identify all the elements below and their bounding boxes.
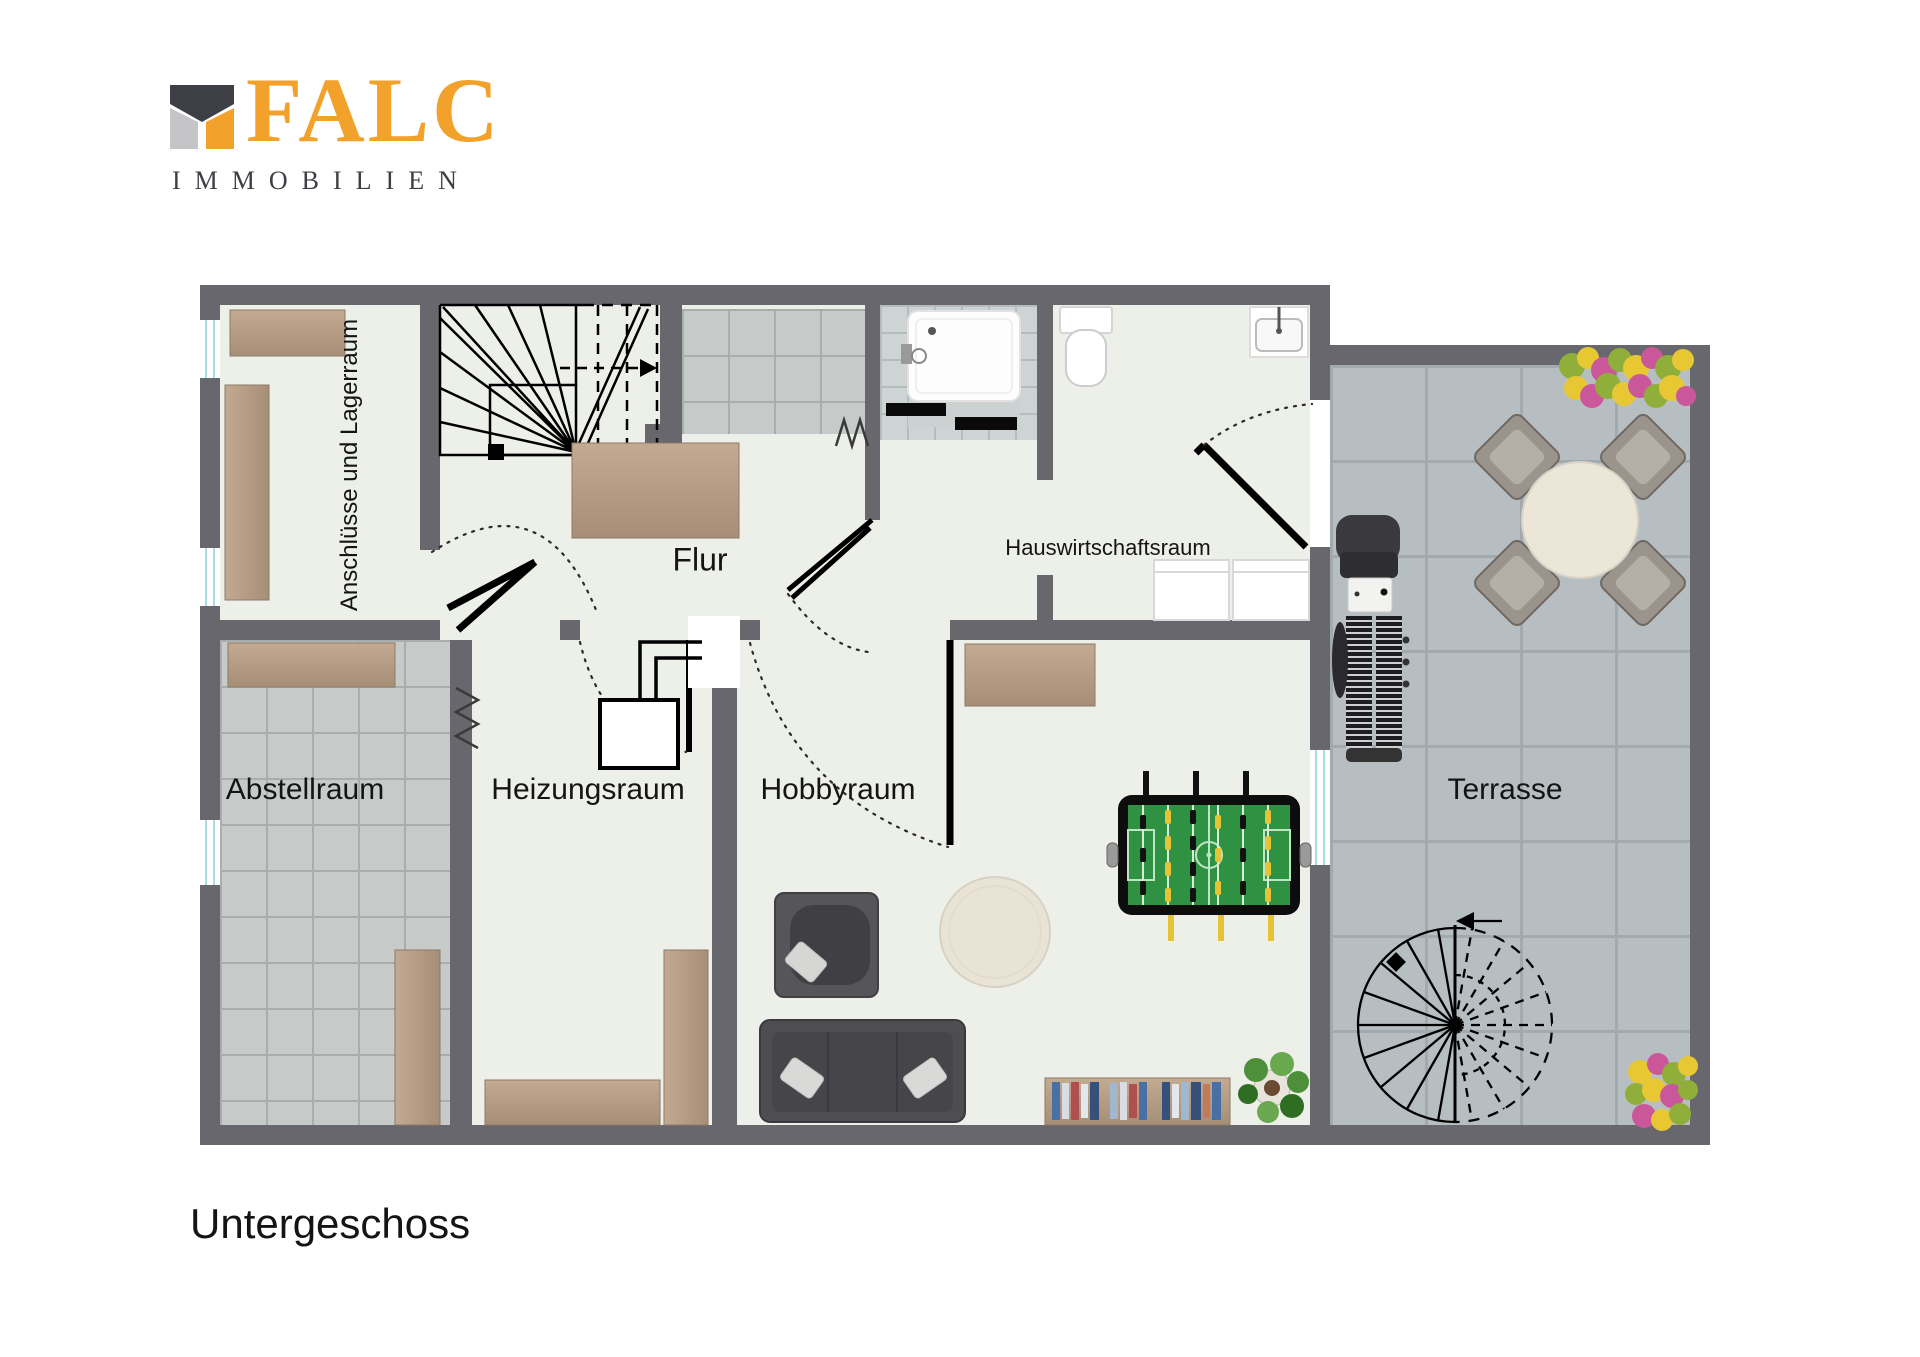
room-label-terrasse: Terrasse — [1447, 773, 1562, 807]
terrace-floor — [1330, 365, 1690, 1125]
wall-stair-corner — [645, 424, 682, 446]
wall-shower-left — [865, 305, 880, 520]
wall-terrace-top — [1330, 345, 1710, 365]
wall-stair-right — [660, 305, 682, 424]
room-label-hauswirtschaftsraum: Hauswirtschaftsraum — [1005, 535, 1210, 561]
wall-anschluesse-right — [420, 305, 440, 550]
shower-area-floor — [880, 305, 1037, 440]
window-icon — [1310, 750, 1330, 865]
room-label-hobbyraum: Hobbyraum — [760, 773, 915, 807]
falc-logo-icon — [170, 85, 234, 151]
wall-bottom — [200, 1125, 1710, 1145]
window-icon — [200, 548, 220, 606]
tiled-area-floor — [682, 309, 865, 434]
room-label-heizungsraum: Heizungsraum — [491, 773, 684, 807]
wall-top — [200, 285, 1330, 305]
brand-name: FALC — [246, 57, 502, 163]
wall-hwr-bottom — [950, 620, 1310, 640]
wall-divider-left — [200, 620, 440, 640]
window-icon — [200, 820, 220, 885]
wall-heizung-hobby — [712, 640, 737, 1125]
window-icon — [200, 320, 220, 378]
wall-stub-b — [737, 620, 760, 640]
room-label-flur: Flur — [672, 542, 727, 579]
wall-stub-a — [560, 620, 580, 640]
wall-hwr-left-a — [1037, 305, 1053, 480]
floor-caption: Untergeschoss — [190, 1200, 470, 1248]
room-label-abstellraum: Abstellraum — [226, 773, 384, 807]
wall-terrace-right — [1690, 345, 1710, 1145]
floorplan-page: FALC IMMOBILIEN — [0, 0, 1920, 1357]
wall-left — [200, 285, 220, 1145]
wall-abstellraum-right — [450, 640, 472, 1125]
brand-subtitle: IMMOBILIEN — [172, 166, 471, 196]
door-opening — [1310, 400, 1330, 547]
room-label-anschluesse: Anschlüsse und Lagerraum — [336, 319, 364, 611]
wall-hwr-left-b — [1037, 575, 1053, 620]
abstellraum-floor — [220, 640, 450, 1125]
